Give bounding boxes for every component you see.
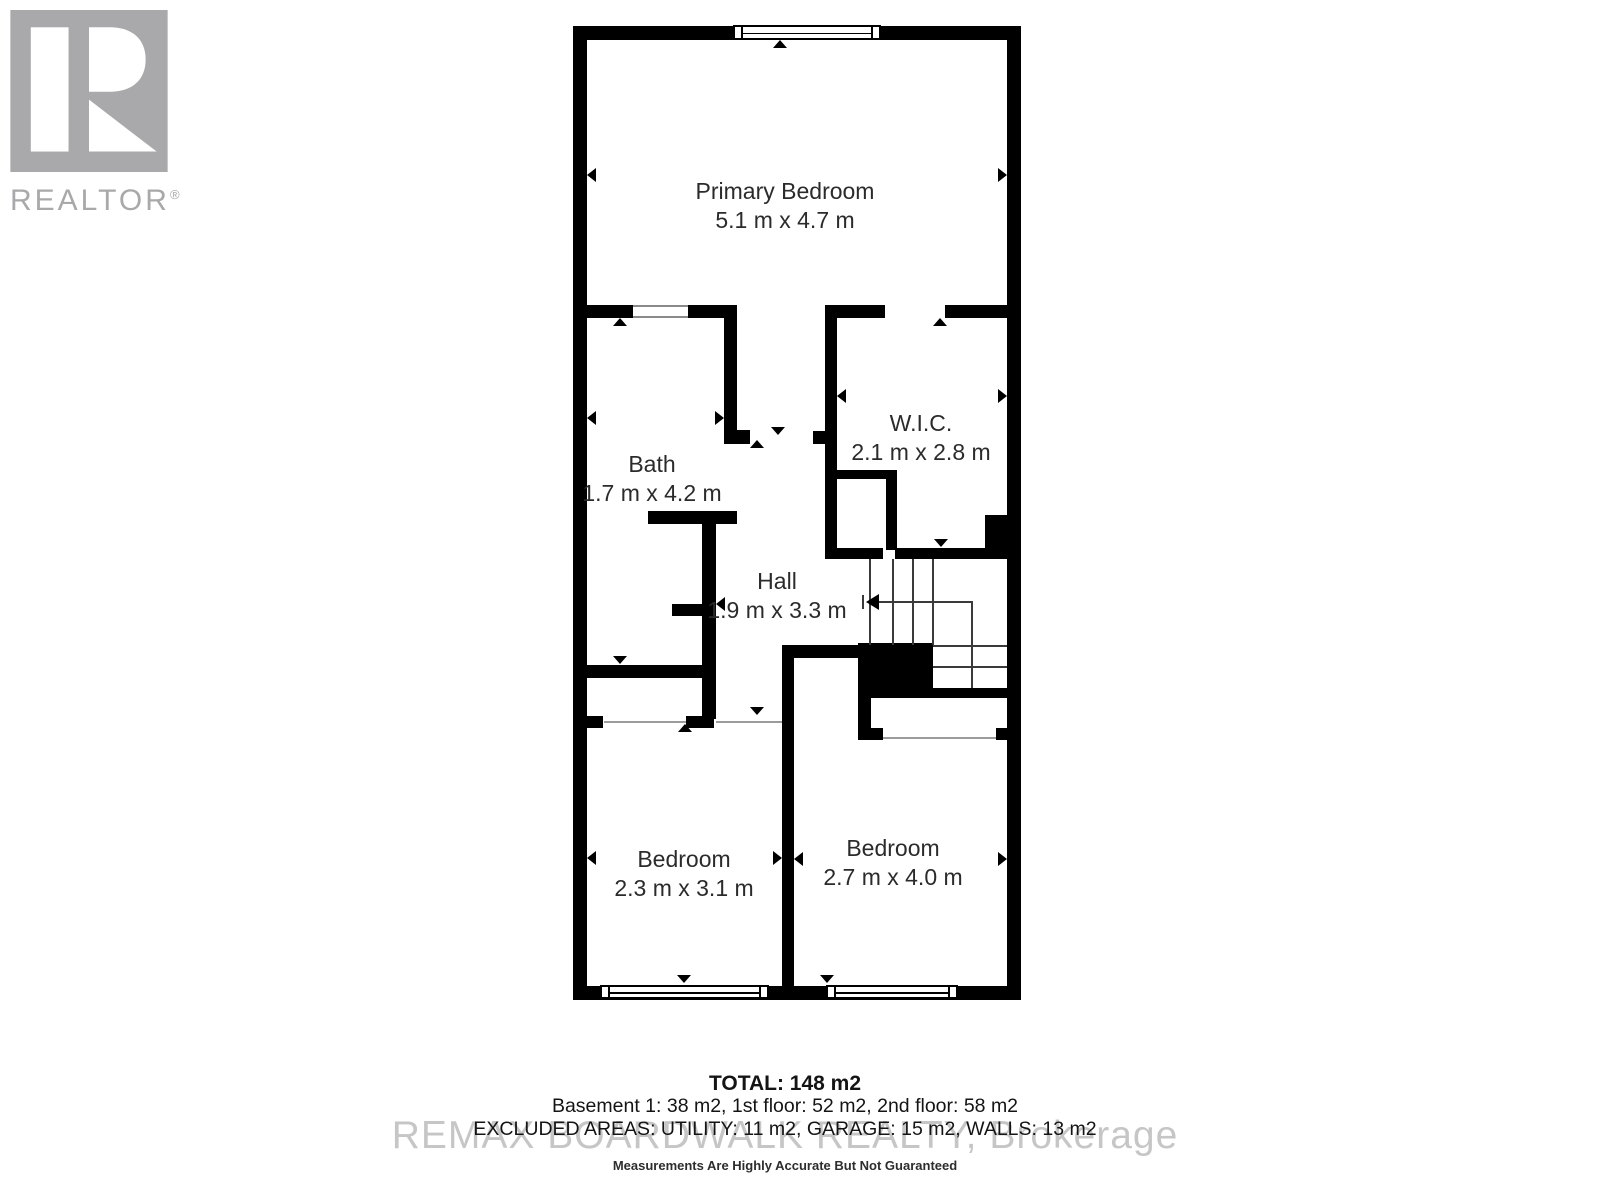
opening-line-bedroom-right (883, 737, 996, 739)
wall-segment (871, 728, 883, 740)
opening-arrow-down (820, 975, 834, 983)
window-cap (600, 985, 610, 999)
wall-bedroom-divider (782, 645, 794, 986)
room-name: Bath (582, 450, 721, 479)
wall-segment (886, 470, 897, 550)
measurement-disclaimer: Measurements Are Highly Accurate But Not… (285, 1158, 1285, 1173)
wall-segment (672, 604, 702, 616)
dimension-arrow-left (837, 389, 846, 403)
window-bottom-left (604, 985, 769, 999)
wall-segment (945, 305, 1007, 318)
room-dimensions: 1.9 m x 3.3 m (707, 596, 846, 625)
opening-arrow-up (678, 724, 692, 732)
realtor-brand-text: REALTOR (10, 184, 170, 217)
room-label-primary-bedroom: Primary Bedroom 5.1 m x 4.7 m (696, 177, 875, 235)
wall-segment (858, 688, 1007, 698)
room-name: W.I.C. (851, 409, 990, 438)
wall-segment (895, 548, 1007, 559)
dimension-arrow-right (773, 851, 782, 865)
room-label-bedroom-right: Bedroom 2.7 m x 4.0 m (823, 834, 962, 892)
room-dimensions: 5.1 m x 4.7 m (696, 206, 875, 235)
wall-block (985, 515, 1007, 548)
wall-segment (813, 431, 825, 444)
room-label-hall: Hall 1.9 m x 3.3 m (707, 567, 846, 625)
room-dimensions: 1.7 m x 4.2 m (582, 479, 721, 508)
opening-arrow-up (933, 318, 947, 326)
room-label-bedroom-left: Bedroom 2.3 m x 3.1 m (614, 845, 753, 903)
room-label-wic: W.I.C. 2.1 m x 2.8 m (851, 409, 990, 467)
floorplan-page: REALTOR® (0, 0, 1600, 1200)
stair-tread (971, 645, 973, 688)
stair-direction-tick (862, 595, 864, 609)
window-cap (826, 985, 836, 999)
area-summary: TOTAL: 148 m2 Basement 1: 38 m2, 1st flo… (285, 1072, 1285, 1140)
window-cap (871, 25, 881, 40)
room-dimensions: 2.3 m x 3.1 m (614, 874, 753, 903)
opening-line-bedroom-left (604, 721, 686, 723)
wall-segment (858, 698, 871, 740)
room-dimensions: 2.1 m x 2.8 m (851, 438, 990, 467)
wall-segment (573, 305, 633, 318)
opening-arrow-down (677, 975, 691, 983)
opening-arrow-up (750, 440, 764, 448)
dimension-arrow-left (794, 852, 803, 866)
room-name: Primary Bedroom (696, 177, 875, 206)
window-pane-line (739, 33, 875, 35)
dimension-arrow-left (587, 851, 596, 865)
opening-arrow-up (613, 318, 627, 326)
realtor-logo: REALTOR® (10, 10, 168, 218)
realtor-r-logo-icon (10, 10, 168, 172)
registered-mark: ® (170, 187, 183, 202)
dimension-arrow-right (998, 852, 1007, 866)
dimension-arrow-right (715, 411, 724, 425)
stair-landing-block (858, 643, 933, 692)
window-cap (759, 985, 769, 999)
wall-segment (648, 511, 737, 524)
window-pane-line (606, 992, 767, 994)
room-dimensions: 2.7 m x 4.0 m (823, 863, 962, 892)
dimension-arrow-right (998, 389, 1007, 403)
stair-direction-arrow (866, 594, 879, 610)
wall-segment (724, 430, 750, 444)
total-area-text: TOTAL: 148 m2 (285, 1072, 1285, 1095)
wall-wic-left (825, 305, 837, 559)
stair-direction-line (878, 601, 972, 603)
room-name: Bedroom (823, 834, 962, 863)
wall-segment (996, 728, 1007, 740)
dimension-arrow-left (587, 411, 596, 425)
window-bottom-right (830, 985, 958, 999)
window-cap (948, 985, 958, 999)
room-name: Bedroom (614, 845, 753, 874)
opening-arrow-down (934, 539, 948, 547)
wall-segment (587, 716, 603, 728)
interior-window-bath (633, 305, 688, 318)
stair-tread (933, 645, 1007, 647)
opening-arrow-down (750, 707, 764, 715)
opening-line-hall (716, 721, 782, 723)
window-cap (733, 25, 743, 40)
stair-tread (933, 666, 1007, 668)
wall-outer-left (573, 26, 587, 1000)
wall-bath-bottom (587, 665, 702, 678)
opening-arrow-up (773, 40, 787, 48)
wall-outer-right (1007, 26, 1021, 1000)
dimension-arrow-left (587, 168, 596, 182)
floor-areas-text: Basement 1: 38 m2, 1st floor: 52 m2, 2nd… (285, 1095, 1285, 1118)
opening-arrow-down (771, 427, 785, 435)
wall-bath-right (724, 305, 737, 437)
window-pane-line (832, 992, 956, 994)
window-top (737, 25, 877, 40)
opening-arrow-down (613, 656, 627, 664)
dimension-arrow-right (998, 168, 1007, 182)
room-label-bath: Bath 1.7 m x 4.2 m (582, 450, 721, 508)
stair-direction-line (971, 601, 973, 645)
excluded-areas-text: EXCLUDED AREAS: UTILITY: 11 m2, GARAGE: … (285, 1118, 1285, 1141)
realtor-wordmark: REALTOR® (10, 184, 168, 218)
room-name: Hall (707, 567, 846, 596)
wall-segment (825, 548, 883, 559)
